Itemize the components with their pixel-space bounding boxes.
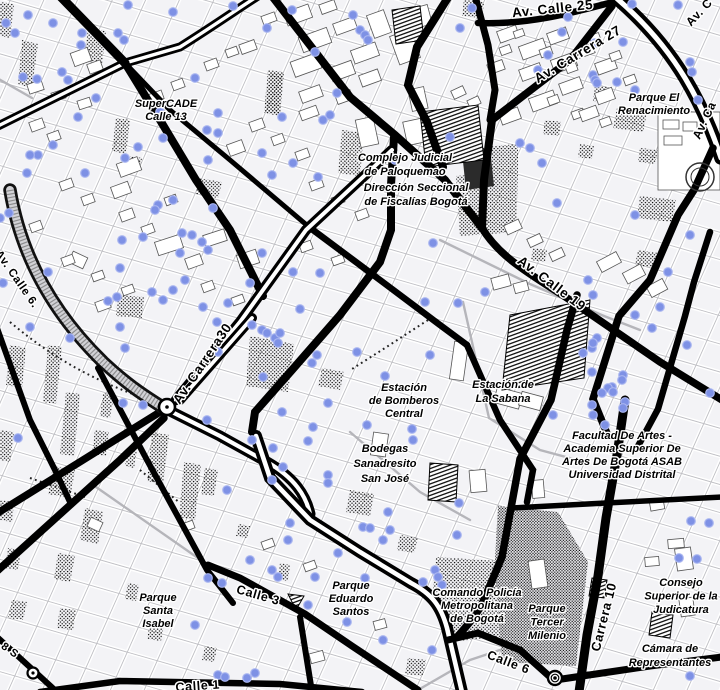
svg-text:ParqueEduardoSantos: ParqueEduardoSantos <box>329 580 374 618</box>
svg-text:Facultad De Artes -Academia Su: Facultad De Artes -Academia Superior DeA… <box>561 430 682 481</box>
svg-text:Calle 1: Calle 1 <box>175 677 220 690</box>
svg-text:BodegasSanadresitoSan José: BodegasSanadresitoSan José <box>354 443 417 485</box>
svg-text:ParqueSantaIsabel: ParqueSantaIsabel <box>139 592 176 630</box>
svg-text:ParqueTercerMilenio: ParqueTercerMilenio <box>528 603 566 642</box>
